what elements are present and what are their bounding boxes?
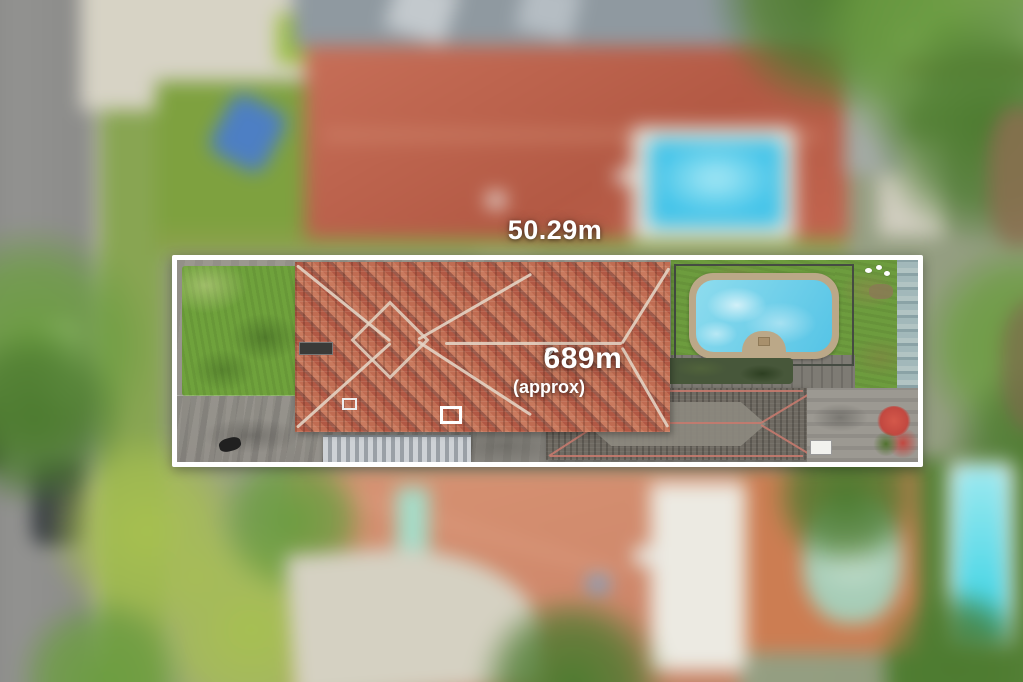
roof-white-dot	[634, 547, 659, 566]
dirt-patch-lawn	[869, 284, 893, 299]
bird	[865, 268, 872, 273]
rear-roof-ridge	[760, 424, 809, 455]
front-lawn	[182, 266, 300, 396]
pool-step-marker	[758, 337, 770, 346]
pool-coping	[689, 273, 839, 359]
carport-roof	[323, 435, 471, 462]
roof-blue-dot	[588, 576, 609, 593]
bird	[884, 271, 890, 276]
rear-roof-ridge	[550, 455, 803, 457]
neighbor-roof-white-section	[651, 483, 746, 671]
frontage-dimension-label: 50.29m	[508, 215, 603, 246]
area-value: 689m2	[544, 342, 555, 375]
side-fence	[897, 260, 918, 408]
neighbor-pool-top	[649, 139, 784, 227]
dirt-patch	[988, 107, 1023, 247]
roof-vent	[299, 342, 333, 355]
shrub-green	[873, 432, 899, 456]
bird	[876, 265, 882, 270]
roof-white-dot	[616, 170, 633, 182]
roof-hatch	[440, 406, 462, 424]
roof-white-dot	[487, 193, 505, 207]
roof-ridge	[621, 347, 670, 428]
roof-hatch	[342, 398, 357, 410]
rear-roof-ridge	[760, 393, 809, 424]
roof-ridge	[621, 267, 671, 344]
roof-valley	[417, 273, 532, 341]
white-sign	[810, 440, 832, 455]
area-qualifier: (approx)	[513, 377, 585, 398]
area-label: 689m2 (approx)	[513, 342, 585, 398]
aerial-property-photo: 50.29m 689m2 (approx)	[0, 0, 1023, 682]
